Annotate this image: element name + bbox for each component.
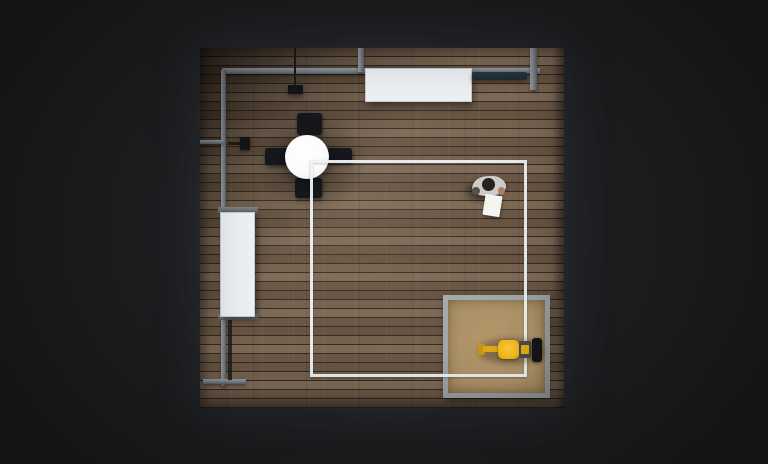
person-head [482, 178, 495, 191]
simulation-viewport[interactable] [0, 0, 768, 464]
rail-connector-mid [358, 48, 364, 72]
robot-rear-unit [532, 338, 542, 362]
person-top-view [466, 174, 508, 218]
pendant-cord [294, 48, 296, 88]
rail-connector-right [530, 48, 537, 90]
person-arm-right [498, 187, 505, 195]
rail-wall-bracket [200, 140, 223, 144]
rail-foot-bottom [203, 379, 246, 384]
wood-floor-room [200, 48, 564, 408]
chair-north [297, 113, 322, 135]
robot-body [498, 340, 519, 359]
teal-bench [472, 72, 527, 80]
rectangular-table-top [365, 68, 472, 102]
pendant-lamp [288, 85, 303, 94]
robot-mid-chip [521, 345, 529, 354]
rectangular-table-left [220, 212, 255, 317]
yellow-robot-loader [478, 336, 545, 364]
wall-device [240, 137, 250, 150]
person-arm-left [472, 187, 480, 195]
person-tablet [482, 194, 502, 217]
floor-pipe [228, 318, 232, 380]
